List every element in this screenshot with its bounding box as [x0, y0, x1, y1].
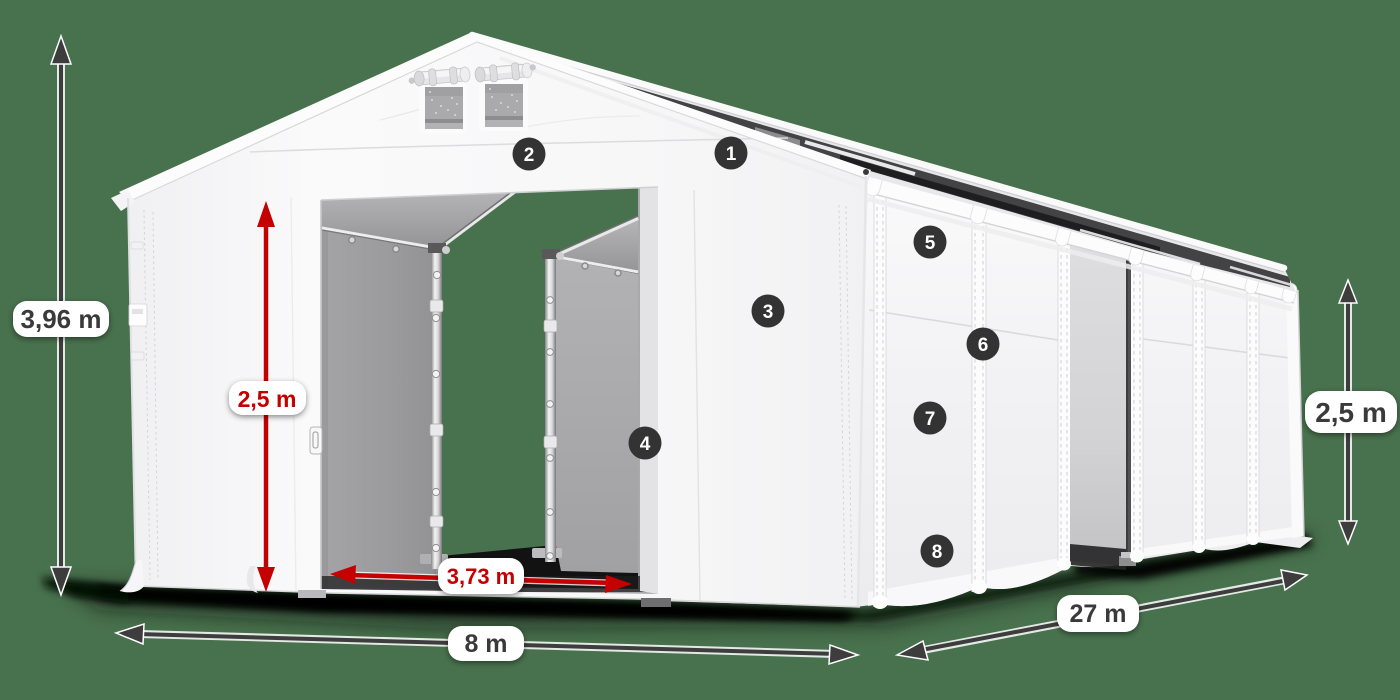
- svg-text:3: 3: [763, 302, 774, 323]
- svg-text:2,5 m: 2,5 m: [238, 386, 297, 412]
- svg-text:8: 8: [932, 542, 943, 563]
- svg-text:7: 7: [925, 409, 936, 430]
- svg-text:5: 5: [925, 233, 936, 254]
- svg-text:6: 6: [978, 335, 989, 356]
- svg-text:2,5 m: 2,5 m: [1315, 397, 1387, 428]
- svg-text:2: 2: [524, 145, 535, 166]
- svg-text:8 m: 8 m: [464, 630, 507, 658]
- svg-text:1: 1: [726, 144, 737, 165]
- svg-text:3,73 m: 3,73 m: [447, 564, 516, 589]
- svg-text:3,96 m: 3,96 m: [21, 304, 102, 334]
- svg-text:27 m: 27 m: [1070, 600, 1127, 628]
- svg-text:4: 4: [640, 434, 651, 455]
